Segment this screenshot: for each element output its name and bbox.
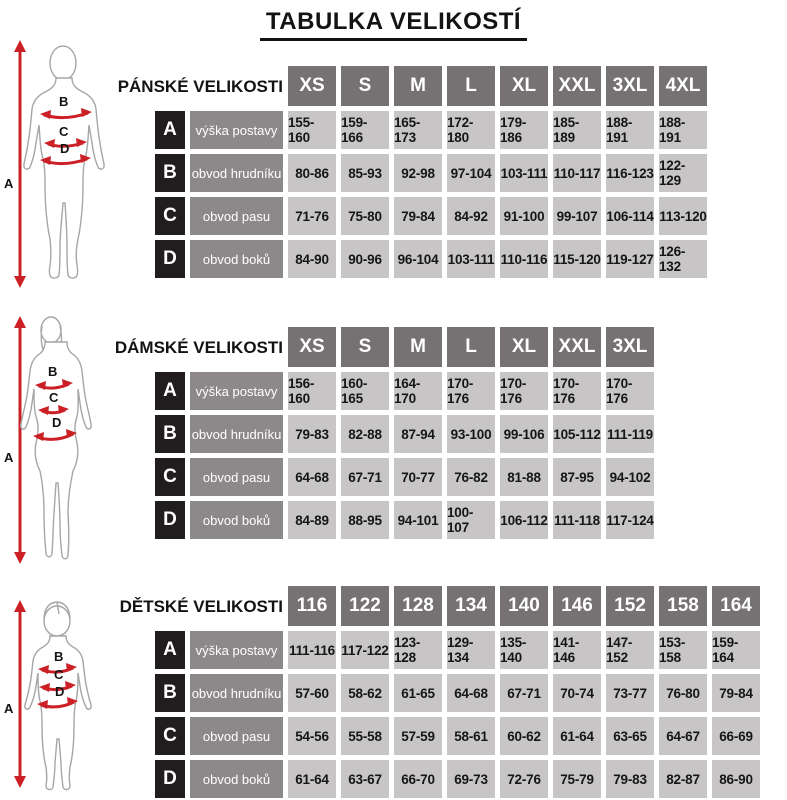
value-cell: 85-93 — [341, 154, 389, 192]
value-cell: 122-129 — [659, 154, 707, 192]
value-cell: 81-88 — [500, 458, 548, 496]
value-cell: 115-120 — [553, 240, 601, 278]
row-label-cell: výška postavy — [190, 631, 283, 669]
mens-figure-illustration: A B C D — [2, 36, 117, 292]
value-cell: 170-176 — [447, 372, 495, 410]
value-cell: 155-160 — [288, 111, 336, 149]
size-header-cell: 128 — [394, 586, 442, 626]
value-cell: 71-76 — [288, 197, 336, 235]
value-cell: 87-94 — [394, 415, 442, 453]
height-measure-arrow — [14, 600, 26, 788]
row-letter-cell: C — [155, 197, 185, 235]
value-cell: 111-118 — [553, 501, 601, 539]
waist-marker-label: C — [54, 667, 64, 682]
chest-marker-label: B — [54, 649, 63, 664]
row-letter-cell: B — [155, 415, 185, 453]
value-cell: 70-74 — [553, 674, 601, 712]
value-cell: 126-132 — [659, 240, 707, 278]
value-cell: 84-90 — [288, 240, 336, 278]
header-spacer — [190, 66, 283, 106]
value-cell: 72-76 — [500, 760, 548, 798]
value-cell: 73-77 — [606, 674, 654, 712]
value-cell: 97-104 — [447, 154, 495, 192]
value-cell: 92-98 — [394, 154, 442, 192]
value-cell: 79-84 — [394, 197, 442, 235]
value-cell: 170-176 — [553, 372, 601, 410]
row-letter-cell: C — [155, 717, 185, 755]
size-header-cell: L — [447, 327, 495, 367]
value-cell: 117-124 — [606, 501, 654, 539]
value-cell: 103-111 — [447, 240, 495, 278]
size-header-cell: XS — [288, 327, 336, 367]
value-cell: 84-92 — [447, 197, 495, 235]
value-cell: 64-68 — [447, 674, 495, 712]
row-label-cell: výška postavy — [190, 372, 283, 410]
row-letter-cell: D — [155, 501, 185, 539]
value-cell: 57-60 — [288, 674, 336, 712]
row-label-cell: obvod hrudníku — [190, 415, 283, 453]
value-cell: 116-123 — [606, 154, 654, 192]
size-header-cell: 146 — [553, 586, 601, 626]
value-cell: 141-146 — [553, 631, 601, 669]
value-cell: 188-191 — [659, 111, 707, 149]
value-cell: 57-59 — [394, 717, 442, 755]
height-marker-label: A — [4, 701, 14, 716]
value-cell: 179-186 — [500, 111, 548, 149]
row-letter-cell: A — [155, 111, 185, 149]
size-chart-page: { "title": "TABULKA VELIKOSTÍ", "figure_… — [0, 0, 787, 800]
womens-size-table: XSSMLXLXXL3XLAvýška postavy156-160160-16… — [155, 327, 654, 539]
row-label-cell: obvod hrudníku — [190, 674, 283, 712]
value-cell: 113-120 — [659, 197, 707, 235]
height-marker-label: A — [4, 176, 14, 191]
size-header-cell: 3XL — [606, 327, 654, 367]
value-cell: 63-65 — [606, 717, 654, 755]
size-header-cell: XL — [500, 327, 548, 367]
value-cell: 170-176 — [500, 372, 548, 410]
value-cell: 91-100 — [500, 197, 548, 235]
value-cell: 54-56 — [288, 717, 336, 755]
size-header-cell: 158 — [659, 586, 707, 626]
row-label-cell: obvod pasu — [190, 458, 283, 496]
row-letter-cell: B — [155, 154, 185, 192]
value-cell: 76-82 — [447, 458, 495, 496]
value-cell: 160-165 — [341, 372, 389, 410]
value-cell: 147-152 — [606, 631, 654, 669]
childrens-figure-illustration: A B C D — [2, 588, 117, 795]
header-spacer — [190, 586, 283, 626]
value-cell: 129-134 — [447, 631, 495, 669]
height-marker-label: A — [4, 450, 14, 465]
page-title: TABULKA VELIKOSTÍ — [260, 8, 527, 41]
value-cell: 103-111 — [500, 154, 548, 192]
row-letter-cell: B — [155, 674, 185, 712]
value-cell: 111-119 — [606, 415, 654, 453]
waist-marker-label: C — [59, 124, 69, 139]
value-cell: 80-86 — [288, 154, 336, 192]
size-header-cell: XXL — [553, 327, 601, 367]
value-cell: 75-79 — [553, 760, 601, 798]
value-cell: 117-122 — [341, 631, 389, 669]
row-letter-cell: D — [155, 240, 185, 278]
value-cell: 111-116 — [288, 631, 336, 669]
value-cell: 70-77 — [394, 458, 442, 496]
hips-marker-label: D — [60, 141, 69, 156]
row-label-cell: obvod pasu — [190, 197, 283, 235]
value-cell: 61-64 — [288, 760, 336, 798]
value-cell: 79-84 — [712, 674, 760, 712]
value-cell: 110-116 — [500, 240, 548, 278]
size-header-cell: XL — [500, 66, 548, 106]
value-cell: 119-127 — [606, 240, 654, 278]
size-header-cell: 164 — [712, 586, 760, 626]
value-cell: 159-166 — [341, 111, 389, 149]
value-cell: 93-100 — [447, 415, 495, 453]
size-header-cell: 4XL — [659, 66, 707, 106]
value-cell: 106-112 — [500, 501, 548, 539]
value-cell: 185-189 — [553, 111, 601, 149]
value-cell: 79-83 — [606, 760, 654, 798]
size-header-cell: S — [341, 66, 389, 106]
value-cell: 63-67 — [341, 760, 389, 798]
size-header-cell: 140 — [500, 586, 548, 626]
value-cell: 99-106 — [500, 415, 548, 453]
value-cell: 106-114 — [606, 197, 654, 235]
value-cell: 66-69 — [712, 717, 760, 755]
value-cell: 110-117 — [553, 154, 601, 192]
size-header-cell: 3XL — [606, 66, 654, 106]
size-header-cell: 134 — [447, 586, 495, 626]
value-cell: 99-107 — [553, 197, 601, 235]
value-cell: 61-65 — [394, 674, 442, 712]
row-label-cell: obvod hrudníku — [190, 154, 283, 192]
value-cell: 82-87 — [659, 760, 707, 798]
value-cell: 159-164 — [712, 631, 760, 669]
size-header-cell: L — [447, 66, 495, 106]
value-cell: 66-70 — [394, 760, 442, 798]
value-cell: 64-67 — [659, 717, 707, 755]
size-header-cell: M — [394, 66, 442, 106]
value-cell: 123-128 — [394, 631, 442, 669]
value-cell: 84-89 — [288, 501, 336, 539]
header-spacer — [190, 327, 283, 367]
value-cell: 69-73 — [447, 760, 495, 798]
size-header-cell: M — [394, 327, 442, 367]
value-cell: 188-191 — [606, 111, 654, 149]
value-cell: 164-170 — [394, 372, 442, 410]
title-bar: TABULKA VELIKOSTÍ — [0, 8, 787, 41]
size-header-cell: XXL — [553, 66, 601, 106]
value-cell: 79-83 — [288, 415, 336, 453]
value-cell: 105-112 — [553, 415, 601, 453]
value-cell: 67-71 — [341, 458, 389, 496]
value-cell: 94-101 — [394, 501, 442, 539]
waist-marker-label: C — [49, 390, 59, 405]
value-cell: 153-158 — [659, 631, 707, 669]
chest-marker-label: B — [48, 364, 57, 379]
size-header-cell: 116 — [288, 586, 336, 626]
value-cell: 58-62 — [341, 674, 389, 712]
hips-marker-label: D — [55, 684, 64, 699]
value-cell: 86-90 — [712, 760, 760, 798]
value-cell: 170-176 — [606, 372, 654, 410]
value-cell: 172-180 — [447, 111, 495, 149]
size-header-cell: 122 — [341, 586, 389, 626]
row-label-cell: výška postavy — [190, 111, 283, 149]
value-cell: 88-95 — [341, 501, 389, 539]
value-cell: 58-61 — [447, 717, 495, 755]
hips-marker-label: D — [52, 415, 61, 430]
value-cell: 55-58 — [341, 717, 389, 755]
value-cell: 156-160 — [288, 372, 336, 410]
value-cell: 75-80 — [341, 197, 389, 235]
row-label-cell: obvod pasu — [190, 717, 283, 755]
row-label-cell: obvod boků — [190, 501, 283, 539]
header-spacer — [155, 586, 185, 626]
row-letter-cell: A — [155, 372, 185, 410]
value-cell: 76-80 — [659, 674, 707, 712]
figure-head — [50, 46, 76, 80]
mens-size-table: XSSMLXLXXL3XL4XLAvýška postavy155-160159… — [155, 66, 707, 278]
value-cell: 94-102 — [606, 458, 654, 496]
size-header-cell: S — [341, 327, 389, 367]
row-label-cell: obvod boků — [190, 240, 283, 278]
header-spacer — [155, 66, 185, 106]
value-cell: 100-107 — [447, 501, 495, 539]
size-header-cell: 152 — [606, 586, 654, 626]
value-cell: 82-88 — [341, 415, 389, 453]
value-cell: 90-96 — [341, 240, 389, 278]
childrens-size-table: 116122128134140146152158164Avýška postav… — [155, 586, 760, 798]
row-letter-cell: A — [155, 631, 185, 669]
value-cell: 61-64 — [553, 717, 601, 755]
value-cell: 165-173 — [394, 111, 442, 149]
value-cell: 60-62 — [500, 717, 548, 755]
row-label-cell: obvod boků — [190, 760, 283, 798]
header-spacer — [155, 327, 185, 367]
row-letter-cell: C — [155, 458, 185, 496]
value-cell: 96-104 — [394, 240, 442, 278]
value-cell: 135-140 — [500, 631, 548, 669]
row-letter-cell: D — [155, 760, 185, 798]
value-cell: 64-68 — [288, 458, 336, 496]
size-header-cell: XS — [288, 66, 336, 106]
value-cell: 67-71 — [500, 674, 548, 712]
value-cell: 87-95 — [553, 458, 601, 496]
